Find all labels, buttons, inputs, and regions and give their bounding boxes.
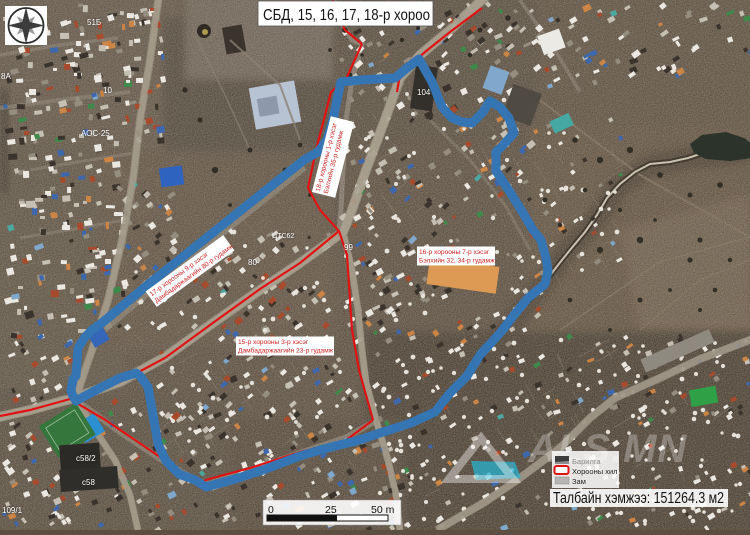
svg-text:10: 10 <box>103 86 112 95</box>
svg-text:109/1: 109/1 <box>2 506 23 515</box>
svg-text:0: 0 <box>268 504 274 516</box>
svg-text:Хорооны хил: Хорооны хил <box>572 467 618 476</box>
svg-text:с58/2: с58/2 <box>76 454 96 463</box>
svg-text:Барилга: Барилга <box>572 457 601 466</box>
svg-text:Зам: Зам <box>572 477 586 486</box>
svg-text:104: 104 <box>417 88 431 97</box>
svg-text:80-: 80- <box>248 258 260 267</box>
svg-text:15-р хорооны 3-р хэсэг: 15-р хорооны 3-р хэсэг <box>238 339 309 346</box>
svg-text:ЦТС62: ЦТС62 <box>272 233 294 240</box>
svg-text:16-р хорооны 7-р хэсэг: 16-р хорооны 7-р хэсэг <box>419 249 490 256</box>
svg-text:25: 25 <box>325 504 337 516</box>
svg-text:Дамбадаржаагийн 23-р гудамж: Дамбадаржаагийн 23-р гудамж <box>238 346 334 354</box>
svg-text:99: 99 <box>344 243 353 252</box>
svg-text:51Б: 51Б <box>87 18 101 27</box>
svg-text:с58: с58 <box>82 478 95 487</box>
svg-text:8А: 8А <box>1 72 11 81</box>
svg-text:Бэлхийн 32, 34-р гудамж: Бэлхийн 32, 34-р гудамж <box>419 256 495 264</box>
svg-text:АОС-25: АОС-25 <box>81 129 110 138</box>
svg-text:Талбайн хэмжээ: 151264.3 м2: Талбайн хэмжээ: 151264.3 м2 <box>553 490 724 507</box>
svg-text:СБД, 15, 16, 17, 18-р хороо: СБД, 15, 16, 17, 18-р хороо <box>263 7 430 24</box>
svg-text:50 m: 50 m <box>371 504 395 516</box>
